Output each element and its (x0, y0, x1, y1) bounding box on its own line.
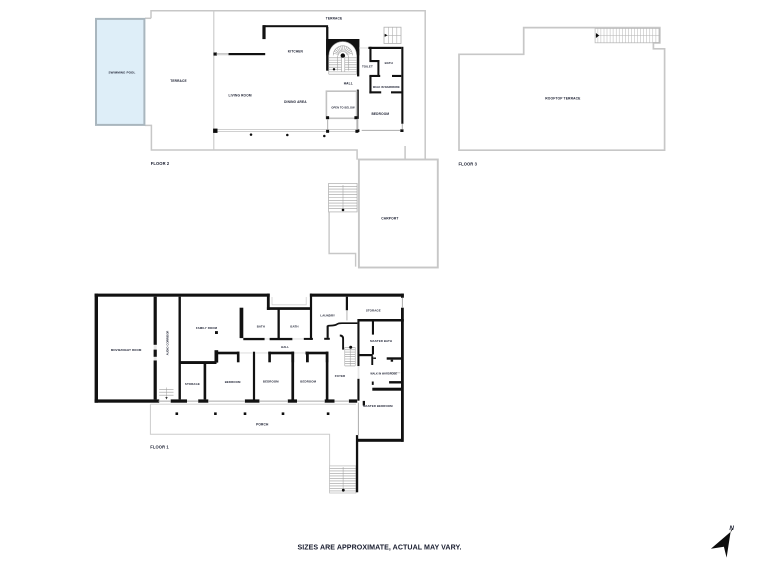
svg-text:BATH: BATH (385, 61, 393, 65)
svg-text:KITCHEN: KITCHEN (288, 50, 304, 54)
svg-text:BEDROOM: BEDROOM (225, 380, 241, 384)
svg-text:HALL: HALL (344, 82, 353, 86)
svg-text:WALK IN WARDROBE: WALK IN WARDROBE (373, 86, 400, 89)
svg-text:SIZES ARE APPROXIMATE, ACTUAL: SIZES ARE APPROXIMATE, ACTUAL MAY VARY. (297, 544, 461, 552)
svg-text:MASTER BEDROOM: MASTER BEDROOM (363, 404, 393, 408)
svg-text:ROOFTOP TERRACE: ROOFTOP TERRACE (545, 97, 581, 101)
svg-text:BEDROOM: BEDROOM (371, 112, 389, 116)
svg-text:PORCH: PORCH (256, 422, 269, 426)
svg-text:HALL: HALL (281, 345, 289, 349)
svg-text:TERRACE: TERRACE (170, 79, 186, 83)
svg-text:LIVING ROOM: LIVING ROOM (229, 93, 252, 97)
svg-text:OPEN TO BELOW: OPEN TO BELOW (331, 106, 355, 110)
svg-text:AUDIO CORRIDOR: AUDIO CORRIDOR (166, 331, 170, 356)
svg-text:TOILET: TOILET (362, 65, 373, 69)
svg-text:N: N (729, 525, 734, 532)
svg-text:MASTER BATH: MASTER BATH (370, 339, 392, 343)
svg-text:BEDROOM: BEDROOM (300, 380, 316, 384)
svg-text:FOYER: FOYER (335, 374, 346, 378)
svg-text:BATH: BATH (290, 325, 298, 329)
svg-text:STORAGE: STORAGE (185, 382, 200, 386)
svg-text:FAMILY ROOM: FAMILY ROOM (196, 326, 218, 330)
svg-text:BEDROOM: BEDROOM (263, 380, 279, 384)
svg-text:LAUNDRY: LAUNDRY (320, 314, 335, 318)
svg-text:TERRACE: TERRACE (326, 16, 342, 20)
svg-text:DINING AREA: DINING AREA (284, 100, 307, 104)
svg-text:SWIMMING POOL: SWIMMING POOL (109, 71, 136, 75)
svg-text:STORAGE: STORAGE (366, 308, 381, 312)
svg-text:FLOOR 1: FLOOR 1 (150, 445, 169, 450)
svg-text:FLOOR 3: FLOOR 3 (459, 162, 478, 167)
svg-text:WALK IN WARDROBE: WALK IN WARDROBE (370, 372, 397, 375)
svg-text:MOVIE/NIGHT ROOM: MOVIE/NIGHT ROOM (111, 348, 142, 352)
svg-text:BATH: BATH (257, 325, 265, 329)
svg-text:CARPORT: CARPORT (381, 217, 398, 221)
svg-text:FLOOR 2: FLOOR 2 (151, 161, 170, 166)
